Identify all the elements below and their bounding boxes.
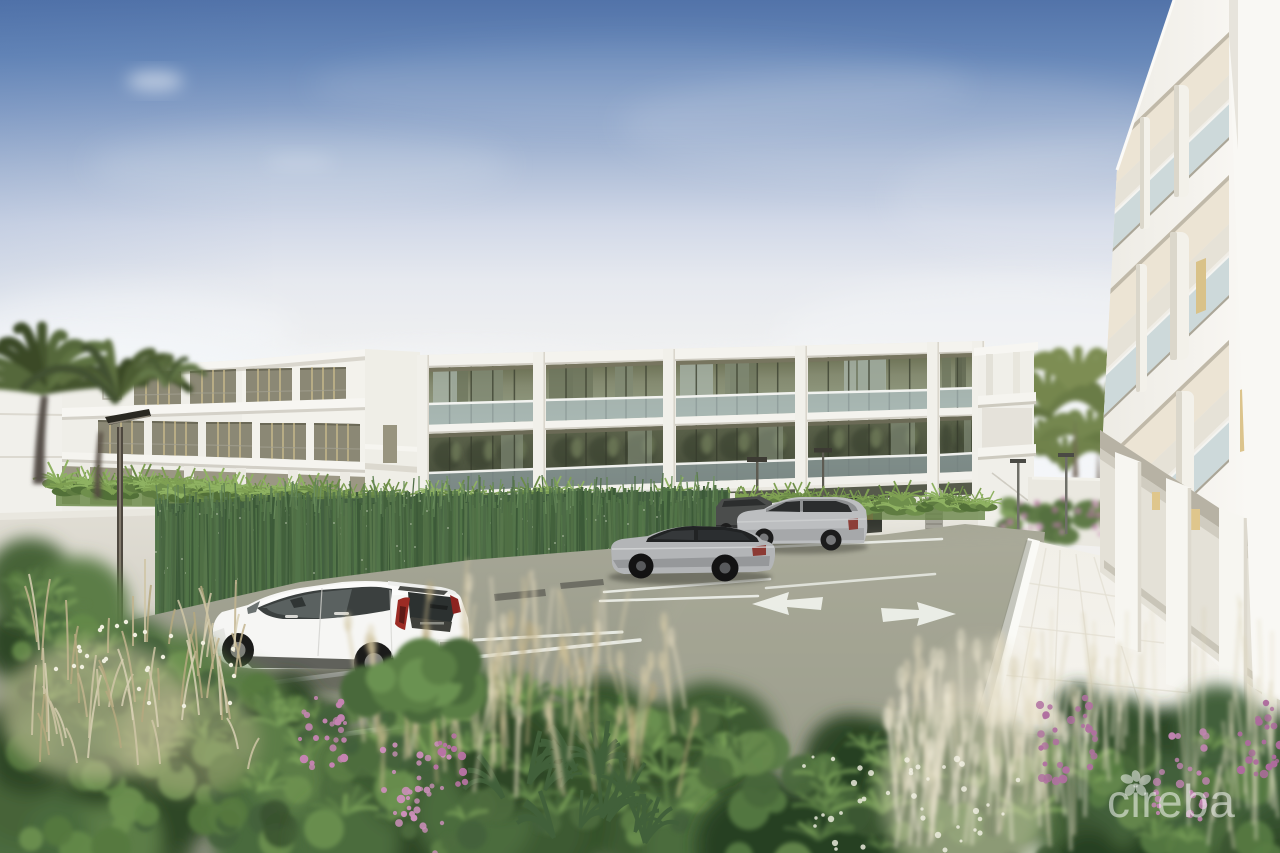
svg-text:cireba: cireba (1107, 775, 1235, 827)
